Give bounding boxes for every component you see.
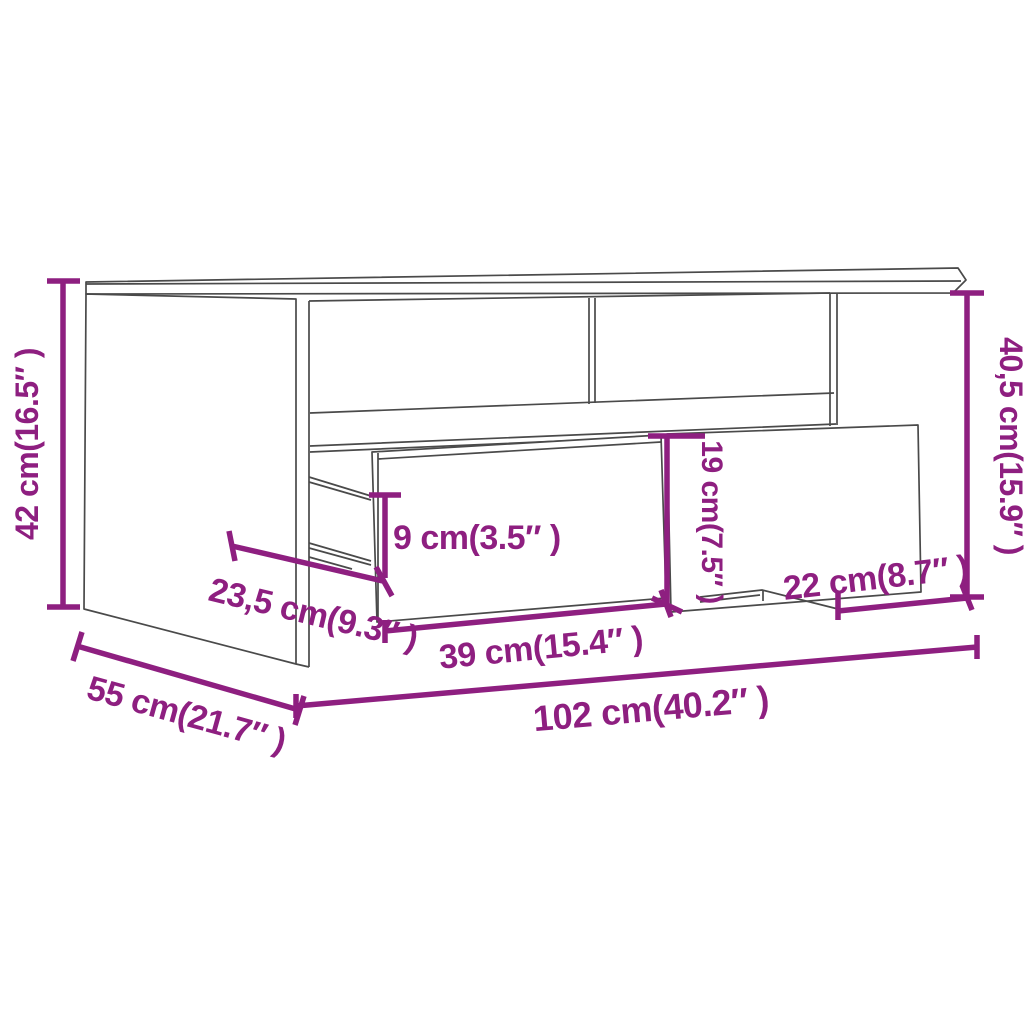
dim-label-overall-depth: 55 cm(21.7″ ) xyxy=(83,669,290,760)
drawer-rails xyxy=(309,477,371,569)
right-side-panel xyxy=(830,293,837,426)
dim-label-drawer-front-height: 19 cm(7.5″ ) xyxy=(695,440,728,603)
dimension-diagram: 42 cm(16.5″ ) 40,5 cm(15.9″ ) 19 cm(7.5″… xyxy=(0,0,1024,1024)
dimension-line xyxy=(47,281,80,607)
dim-label-overall-width: 102 cm(40.2″ ) xyxy=(531,678,770,739)
dim-label-drawer-side-height: 9 cm(3.5″ ) xyxy=(393,519,561,557)
center-divider xyxy=(589,298,595,404)
dim-label-interior-height-right: 40,5 cm(15.9″ ) xyxy=(993,337,1024,555)
dimension-overall-height-left: 42 cm(16.5″ ) xyxy=(9,281,80,607)
dim-label-drawer-width: 39 cm(15.4″ ) xyxy=(437,619,644,676)
diagram-canvas: 42 cm(16.5″ ) 40,5 cm(15.9″ ) 19 cm(7.5″… xyxy=(0,0,1024,1024)
dim-label-overall-height-left: 42 cm(16.5″ ) xyxy=(9,348,45,540)
